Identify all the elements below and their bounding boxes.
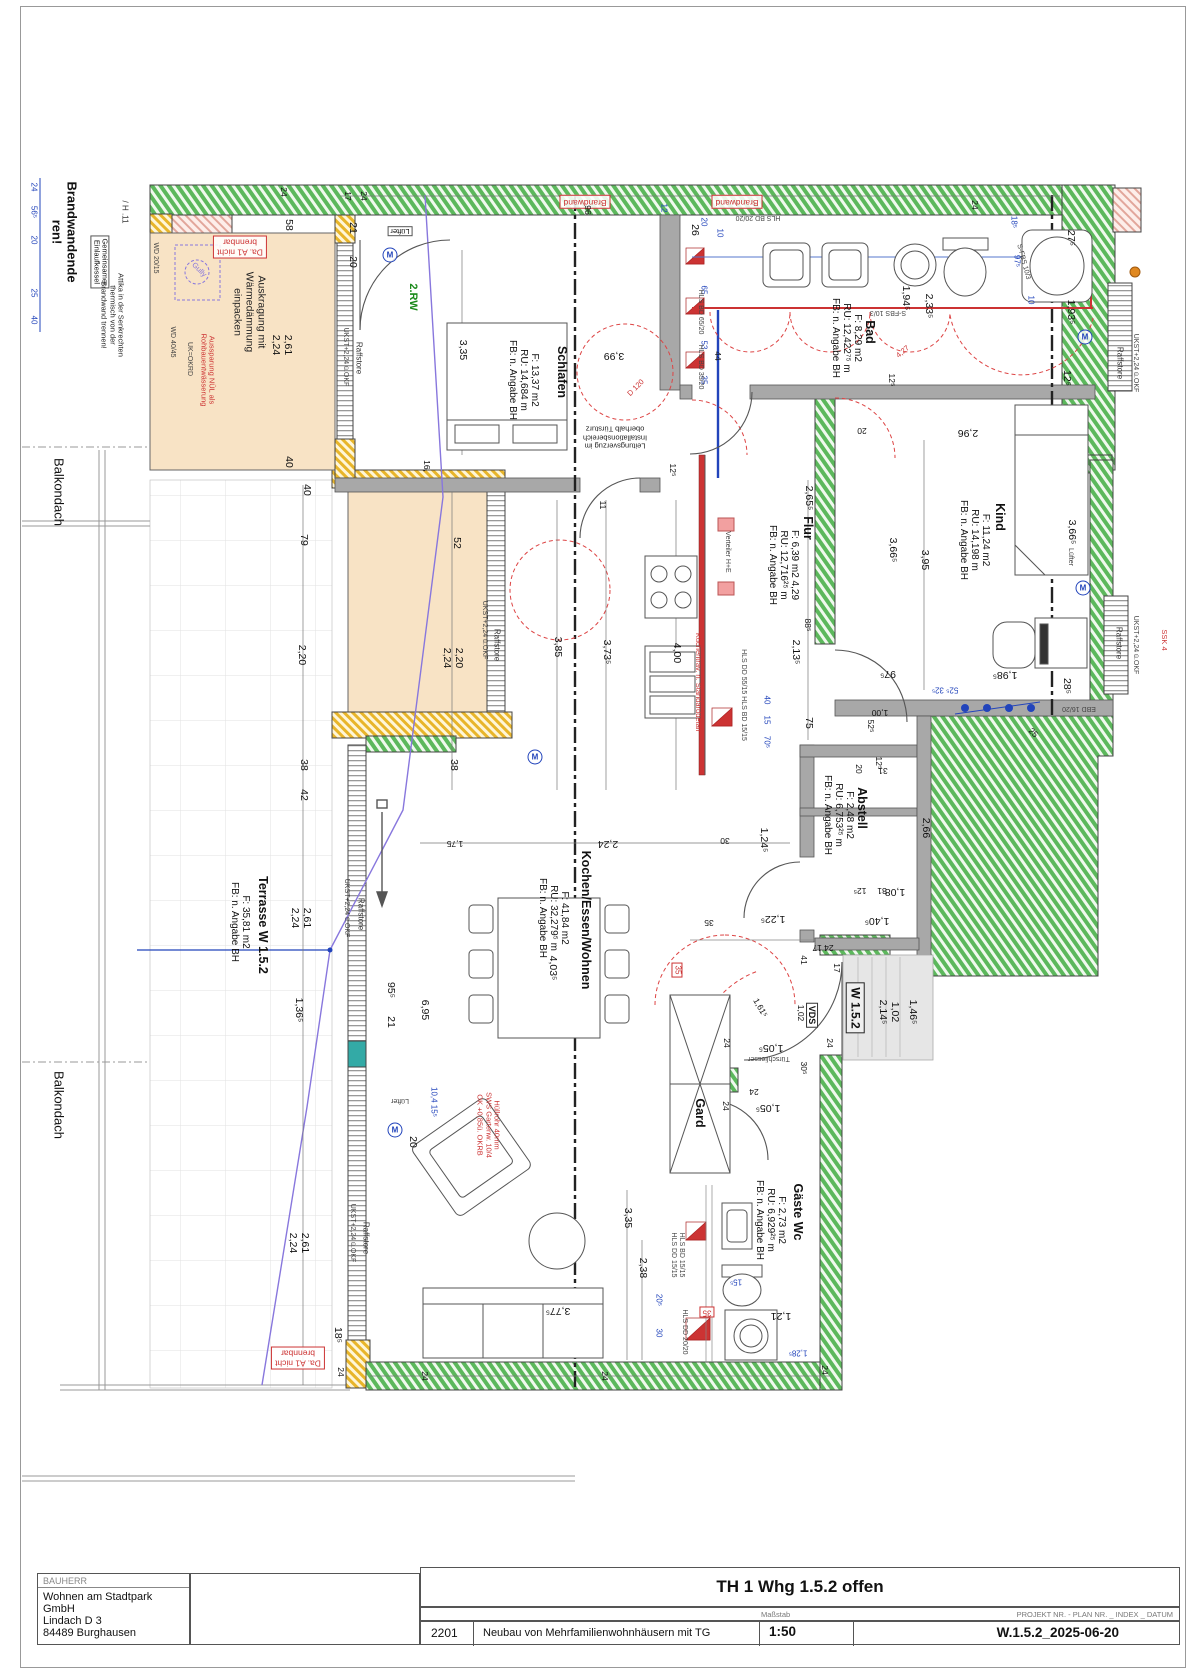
title-block-bottom-row: 2201 Neubau von Mehrfamilienwohnhäusern …: [420, 1621, 1180, 1645]
bauherr-address2: 84489 Burghausen: [43, 1627, 184, 1639]
title-block-header-row: Maßstab PROJEKT NR. - PLAN NR. _ INDEX _…: [420, 1607, 1180, 1621]
title-block-empty-cell: [190, 1573, 420, 1645]
floor-plan-drawing: [0, 0, 1200, 1680]
title-block: BAUHERR Wohnen am Stadtpark GmbH Lindach…: [37, 1565, 1180, 1645]
plan-number: W.1.5.2_2025-06-20: [997, 1625, 1119, 1640]
index-number: 2201: [431, 1626, 458, 1640]
bauherr-address1: Lindach D 3: [43, 1615, 184, 1627]
project-header: PROJEKT NR. - PLAN NR. _ INDEX _ DATUM: [1017, 1610, 1173, 1619]
title-block-bauherr: BAUHERR Wohnen am Stadtpark GmbH Lindach…: [37, 1573, 190, 1645]
floor-plan: Brandwandende ren!2456⁵202540/ H .11Geme…: [0, 0, 1200, 1680]
bauherr-name: Wohnen am Stadtpark GmbH: [43, 1591, 184, 1615]
project-name: Neubau von Mehrfamilienwohnhäusern mit T…: [483, 1627, 710, 1639]
plan-sheet: Brandwandende ren!2456⁵202540/ H .11Geme…: [0, 0, 1200, 1680]
massstab-value: 1:50: [769, 1624, 796, 1639]
massstab-label: Maßstab: [761, 1610, 790, 1619]
sheet-title: TH 1 Whg 1.5.2 offen: [420, 1567, 1180, 1607]
bauherr-header: BAUHERR: [38, 1576, 189, 1588]
